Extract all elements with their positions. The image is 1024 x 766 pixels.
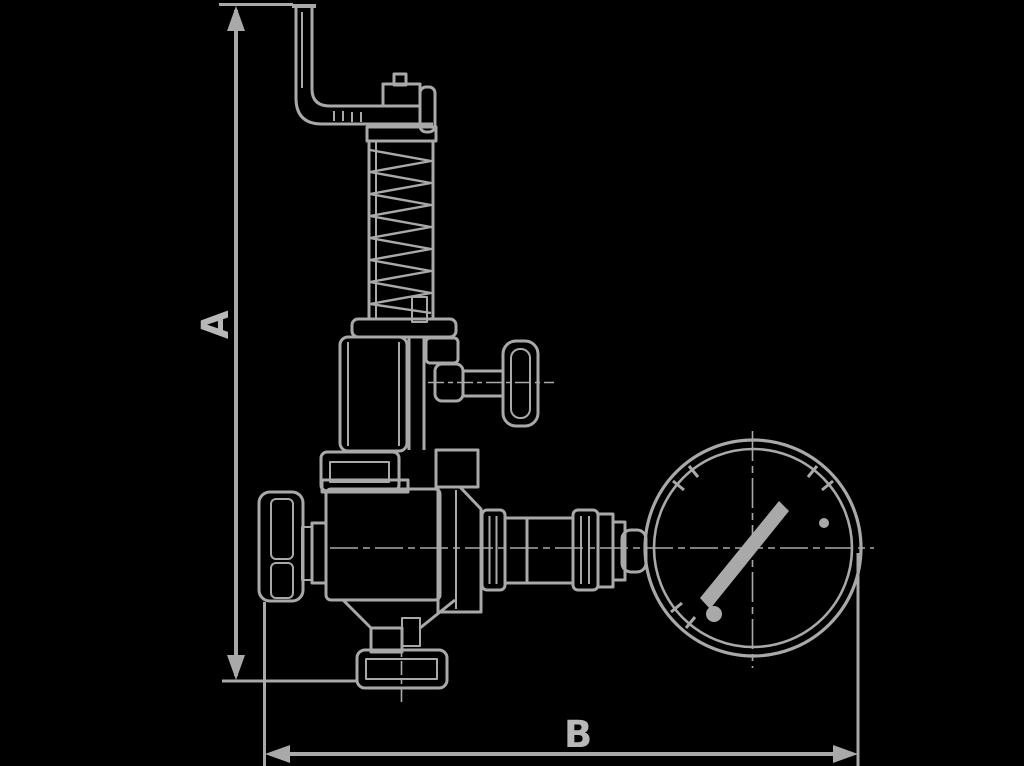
arrow-down-icon <box>227 655 245 680</box>
bonnet-housing <box>340 337 407 451</box>
gauge-needle-hub <box>706 606 722 622</box>
arrow-right-icon <box>833 745 858 763</box>
handwheel-hub-lower <box>271 563 293 598</box>
handwheel-rim <box>259 492 303 601</box>
arrow-up-icon <box>227 6 245 31</box>
spring-coils <box>370 150 431 313</box>
spring-top-plate <box>367 127 436 141</box>
drawing-canvas: A B <box>0 0 1024 766</box>
knob-stem <box>463 371 503 396</box>
test-knob-outer <box>503 341 538 426</box>
union-nut-1 <box>482 510 505 590</box>
dimension-b-label: B <box>564 713 592 756</box>
side-test-knob-assembly <box>428 341 554 426</box>
pipe-collar <box>505 518 527 583</box>
ring-fitting <box>598 514 613 587</box>
spring-column <box>352 127 456 337</box>
bonnet <box>340 337 478 487</box>
spring-cap <box>352 319 456 337</box>
adjusting-cap <box>383 84 420 106</box>
test-lever <box>292 6 435 132</box>
pipe-nipple <box>527 518 573 583</box>
gauge-needle <box>700 501 789 609</box>
dimension-a-label: A <box>194 310 237 339</box>
outlet-neck <box>371 628 402 652</box>
yoke-base-block <box>436 450 478 487</box>
gauge-set-marker <box>819 518 829 528</box>
dimension-b-annotation: B <box>265 553 859 766</box>
lever-inner-edge <box>312 6 421 106</box>
union-nut-2 <box>573 510 598 590</box>
bonnet-flange <box>321 452 408 492</box>
arrow-left-icon <box>265 745 290 763</box>
valve-dimensional-drawing: A B <box>0 0 1024 766</box>
flange-outer <box>321 452 399 491</box>
side-boss <box>426 338 458 363</box>
body-funnel-left <box>343 600 371 628</box>
valve-body <box>326 487 481 702</box>
test-knob-inner <box>511 349 530 418</box>
gauge-piping <box>482 510 646 590</box>
right-outlet-flange <box>438 487 481 612</box>
outlet-side-block <box>402 618 420 646</box>
handwheel-hub-upper <box>271 499 293 559</box>
body-block <box>326 489 440 600</box>
spindle-bush <box>312 523 326 583</box>
pressure-gauge <box>645 431 861 668</box>
shutoff-handwheel <box>259 492 326 601</box>
